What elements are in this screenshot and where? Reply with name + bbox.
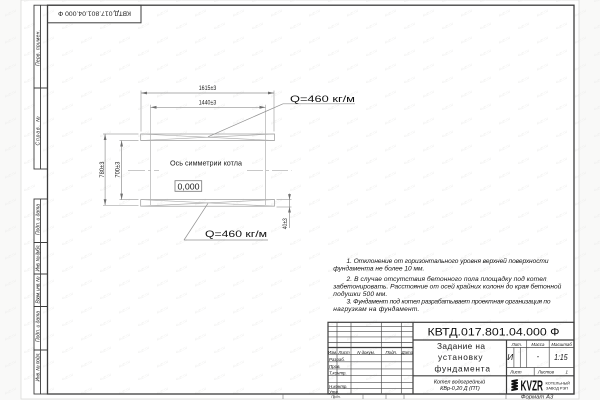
svg-text:40±3: 40±3	[283, 218, 289, 230]
svg-text:Подп.: Подп.	[385, 350, 397, 355]
svg-text:забетонировать. Расстояние от: забетонировать. Расстояние от осей крайн…	[332, 283, 561, 291]
svg-text:КВТД.017.801.04.000 Ф: КВТД.017.801.04.000 Ф	[58, 9, 131, 16]
svg-text:1:15: 1:15	[554, 353, 568, 362]
svg-text:Формат А3: Формат А3	[521, 394, 554, 400]
svg-text:1. Отклонение от горизонтально: 1. Отклонение от горизонтального уровня …	[347, 257, 549, 265]
svg-text:Н.контр.: Н.контр.	[329, 384, 348, 389]
svg-text:Инв. № дубл.: Инв. № дубл.	[35, 245, 41, 272]
svg-text:Лист: Лист	[337, 350, 350, 355]
svg-text:780±3: 780±3	[100, 161, 106, 178]
svg-text:КВТД.017.801.04.000 Ф: КВТД.017.801.04.000 Ф	[428, 326, 560, 338]
svg-text:И: И	[507, 353, 513, 362]
svg-text:3. Фундамент под котел разраба: 3. Фундамент под котел разрабатывает про…	[347, 298, 551, 306]
svg-text:1440±3: 1440±3	[199, 101, 217, 107]
svg-text:Инв. № подл.: Инв. № подл.	[35, 353, 41, 382]
svg-text:Подп. и дата: Подп. и дата	[35, 311, 41, 342]
svg-text:Справ. №: Справ. №	[35, 116, 41, 146]
svg-text:подушки 500 мм.: подушки 500 мм.	[333, 290, 387, 298]
svg-text:фундамента: фундамента	[434, 363, 490, 373]
svg-text:Разраб.: Разраб.	[329, 357, 345, 362]
svg-text:700±3: 700±3	[115, 161, 121, 178]
svg-text:0,000: 0,000	[178, 181, 200, 191]
svg-text:КВр-0,20 Д (ПТ): КВр-0,20 Д (ПТ)	[440, 386, 480, 392]
svg-text:Листов: Листов	[537, 370, 555, 375]
svg-text:1615±3: 1615±3	[199, 86, 217, 92]
svg-text:N докум.: N докум.	[357, 350, 375, 355]
svg-text:Лит.: Лит.	[511, 342, 522, 347]
svg-text:фундамента не более 10 мм.: фундамента не более 10 мм.	[333, 265, 424, 273]
svg-text:Изм.: Изм.	[328, 350, 337, 355]
svg-text:Котел водогрейный: Котел водогрейный	[434, 379, 485, 386]
svg-text:Дата: Дата	[401, 350, 414, 355]
svg-text:Т.контр.: Т.контр.	[329, 370, 347, 375]
svg-text:установку: установку	[438, 352, 483, 362]
svg-text:Q=460 кг/м: Q=460 кг/м	[205, 229, 267, 240]
svg-text:Q=460 кг/м: Q=460 кг/м	[290, 94, 355, 105]
svg-text:Взам. инв. №: Взам. инв. №	[35, 276, 41, 304]
svg-text:Масса: Масса	[531, 342, 545, 347]
svg-text:Ось симметрии котла: Ось симметрии котла	[170, 158, 243, 167]
svg-text:Лист: Лист	[509, 370, 522, 375]
svg-text:Подп.: Подп.	[331, 395, 341, 399]
svg-text:Задание на: Задание на	[437, 341, 485, 351]
svg-text:нагрузкам на фундамент.: нагрузкам на фундамент.	[333, 305, 419, 313]
svg-text:Масштаб: Масштаб	[551, 342, 572, 347]
svg-text:Утв.: Утв.	[329, 389, 339, 394]
svg-text:2. В случае отсутствия бетонно: 2. В случае отсутствия бетонного пола пл…	[346, 275, 547, 283]
svg-text:Пров.: Пров.	[329, 364, 341, 369]
svg-text:КОТЕЛЬНЫЙ: КОТЕЛЬНЫЙ	[546, 382, 571, 386]
svg-text:ЗАВОД РЭП: ЗАВОД РЭП	[546, 387, 568, 391]
svg-text:Подп. и дата: Подп. и дата	[35, 204, 41, 235]
svg-text:KVZR: KVZR	[521, 379, 544, 395]
svg-text:Перв. примен.: Перв. примен.	[35, 30, 41, 66]
